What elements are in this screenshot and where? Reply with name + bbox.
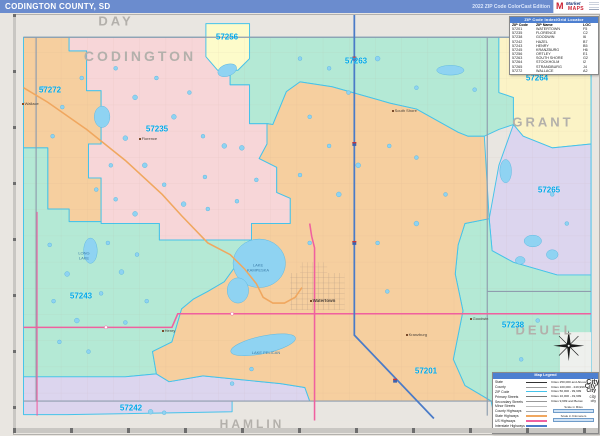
county-label-grant: GRANT xyxy=(512,115,573,130)
legend-title: Map Legend xyxy=(493,373,598,379)
line-sample-state xyxy=(526,382,547,383)
city-street-grid-north xyxy=(300,262,327,273)
lake-label-kampeska: LAKE KAMPESKA xyxy=(247,264,269,273)
line-sample-county xyxy=(526,387,547,388)
zip-index-row: 57201WATERTOWNF5 57235FLORENCEC2 57238GO… xyxy=(510,27,598,73)
logo-text-maps: MAPS xyxy=(568,6,584,12)
town-label-henry: Henry xyxy=(162,328,175,333)
brand-logo: M Market MAPS xyxy=(553,0,600,13)
line-sample-minor xyxy=(526,406,547,407)
zip-label-57265: 57265 xyxy=(538,186,560,195)
lake-label-long-lake: LONG LAKE xyxy=(78,252,89,261)
edition-label: 2022 ZIP Code ColorCast Edition xyxy=(472,4,550,10)
page-title: CODINGTON COUNTY, SD xyxy=(5,2,110,11)
line-sample-secondary xyxy=(526,401,547,402)
scale-bar-miles: Scale in Miles xyxy=(551,405,596,411)
zip-label-57256: 57256 xyxy=(216,33,238,42)
line-sample-zip xyxy=(526,391,547,392)
county-label-codington: CODINGTON xyxy=(84,48,196,64)
grid-ticks-left xyxy=(13,14,16,433)
section-grid-overlay xyxy=(23,37,591,401)
legend-city-sizes: Cities 250,000 and AboveCity Cities 100,… xyxy=(551,380,596,420)
line-sample-interstate xyxy=(526,425,547,427)
line-sample-county-hwy xyxy=(526,411,547,412)
zip-label-57238: 57238 xyxy=(502,321,524,330)
zip-label-57263: 57263 xyxy=(345,57,367,66)
zip-label-57242: 57242 xyxy=(120,404,142,413)
logo-mark-icon: M xyxy=(556,1,564,12)
line-sample-primary xyxy=(526,396,547,397)
zip-index-table: ZIP Code Index/Grid Locator ZIP Code ZIP… xyxy=(509,16,599,75)
map-legend: Map Legend State County ZIP Code Primary… xyxy=(492,372,599,434)
town-label-watertown: Watertown xyxy=(310,298,335,303)
town-label-kranzburg: Kranzburg xyxy=(406,332,427,337)
header-bar: CODINGTON COUNTY, SD 2022 ZIP Code Color… xyxy=(0,0,600,13)
zip-label-57272: 57272 xyxy=(39,86,61,95)
line-sample-state-hwy xyxy=(526,415,547,417)
map-page: CODINGTON COUNTY, SD 2022 ZIP Code Color… xyxy=(0,0,600,436)
lake-label-pelican: LAKE PELICAN xyxy=(252,351,280,356)
town-label-florence: Florence xyxy=(139,136,157,141)
county-label-deuel: DEUEL xyxy=(515,323,574,338)
zip-label-57243: 57243 xyxy=(70,292,92,301)
legend-line-items: State County ZIP Code Primary Streets Se… xyxy=(495,380,550,433)
town-label-goodwin: Goodwin xyxy=(470,316,488,321)
line-sample-us-hwy xyxy=(526,420,547,422)
county-label-day: DAY xyxy=(98,14,133,29)
town-label-south-shore: South Shore xyxy=(392,108,417,113)
logo-address-block xyxy=(589,2,599,11)
zip-label-57235: 57235 xyxy=(146,125,168,134)
zip-label-57201: 57201 xyxy=(415,367,437,376)
grid-ticks-bottom xyxy=(13,428,598,433)
town-label-wallace: Wallace xyxy=(22,101,39,106)
scale-bar-kilometers: Scale in Kilometers xyxy=(551,414,596,420)
